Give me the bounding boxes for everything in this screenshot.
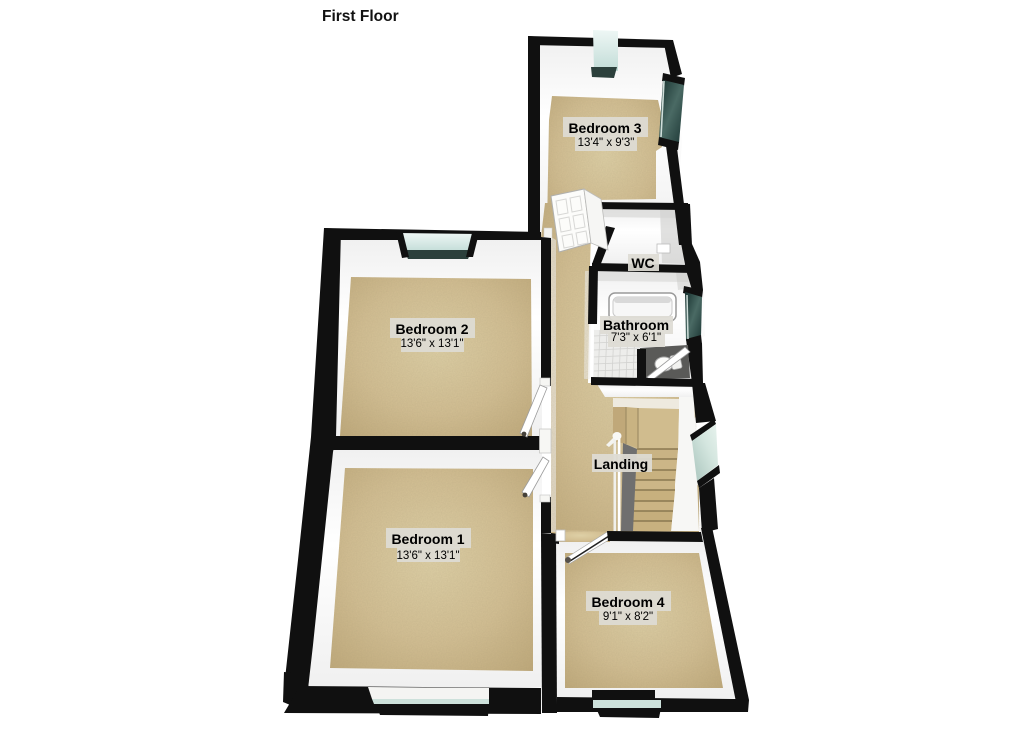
svg-text:13'4" x 9'3": 13'4" x 9'3"	[578, 137, 635, 149]
svg-text:First Floor: First Floor	[322, 8, 399, 25]
svg-text:7'3" x 6'1": 7'3" x 6'1"	[611, 332, 661, 344]
svg-text:13'6" x 13'1": 13'6" x 13'1"	[400, 338, 463, 350]
svg-text:Bedroom 1: Bedroom 1	[391, 531, 464, 547]
svg-text:WC: WC	[631, 255, 654, 271]
svg-text:Bedroom 3: Bedroom 3	[568, 120, 641, 136]
svg-text:Bathroom: Bathroom	[603, 317, 669, 333]
svg-text:Landing: Landing	[594, 456, 648, 472]
svg-text:13'6" x 13'1": 13'6" x 13'1"	[396, 550, 459, 562]
svg-text:Bedroom 4: Bedroom 4	[591, 594, 664, 610]
svg-text:9'1" x 8'2": 9'1" x 8'2"	[603, 611, 653, 623]
svg-text:Bedroom 2: Bedroom 2	[395, 321, 468, 337]
